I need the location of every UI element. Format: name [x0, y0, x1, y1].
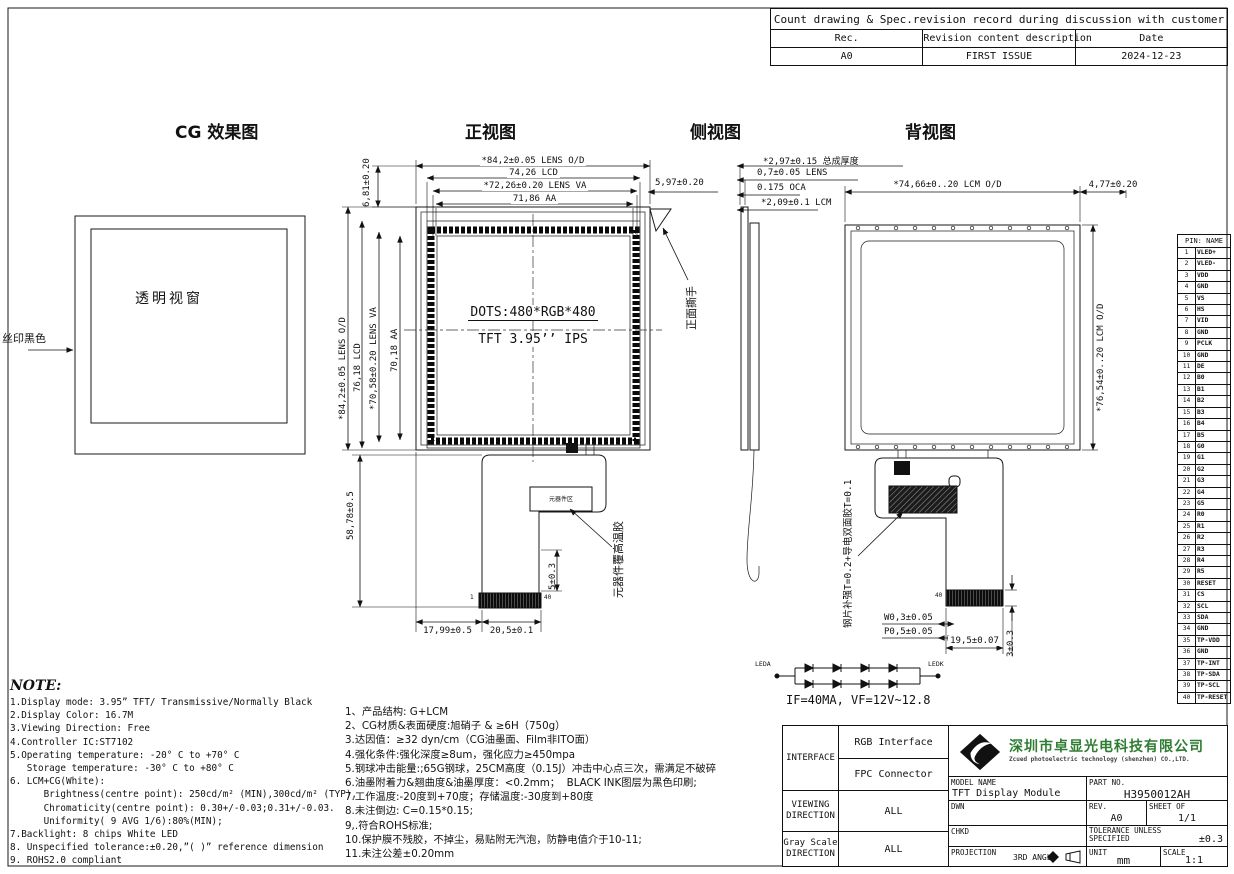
- revision-table: Count drawing & Spec.revision record dur…: [770, 8, 1228, 66]
- company-name-en: Zcued photoelectric technology (shenzhen…: [1009, 756, 1190, 763]
- note-cn-line: 6.油墨附着力&翘曲度&油墨厚度：<0.2mm； BLACK INK图层为黑色印…: [345, 776, 785, 790]
- company-name-cn: 深圳市卓显光电科技有限公司: [1009, 736, 1204, 756]
- interface-label-cell: INTERFACE: [782, 725, 839, 791]
- notes-en-heading: NOTE:: [10, 678, 61, 694]
- note-en-line: 7.Backlight: 8 chips White LED: [10, 828, 340, 841]
- chkd-cell: CHKD: [948, 825, 1087, 847]
- note-cn-line: 2、CG材质&表面硬度:旭硝子 & ≥6H（750g）: [345, 719, 785, 733]
- third-angle-projection-icon: [1046, 850, 1082, 864]
- note-en-line: 5.Operating temperature: -20° C to +70° …: [10, 749, 340, 762]
- notes-cn-lines: 1、产品结构: G+LCM2、CG材质&表面硬度:旭硝子 & ≥6H（750g）…: [345, 705, 785, 861]
- tolerance-cell: TOLERANCE UNLESS SPECIFIED ±0.3: [1086, 825, 1228, 847]
- pin-row: 5VS: [1178, 293, 1231, 304]
- led-cathode-label: LEDK: [928, 660, 944, 668]
- front-view-shape: [342, 160, 718, 632]
- viewing-direction-value-cell: ALL: [838, 790, 949, 832]
- dim-tail-width: 20,5±0.1: [482, 626, 541, 636]
- notes-en-lines: 1.Display mode: 3.95” TFT/ Transmissive/…: [10, 696, 340, 868]
- drawing-sheet: CG 效果图 正视图 侧视图 背视图 丝印黑色 透明视窗 *84,2±0.05 …: [0, 0, 1234, 874]
- view-title-back: 背视图: [905, 118, 956, 143]
- dim-lcm-od-v: *76,54±0..20 LCM O/D: [1096, 304, 1106, 412]
- pin-table-body: 1VLED+2VLED-3VDD4GND5VS6HS7VID8GND9PCLK1…: [1178, 248, 1231, 704]
- dim-oca-thickness: 0.175 OCA: [757, 183, 806, 193]
- pin-row: 8GND: [1178, 327, 1231, 338]
- component-glue-label: 元器件覆高温胶: [610, 521, 626, 598]
- pin-table: PIN: NAME 1VLED+2VLED-3VDD4GND5VS6HS7VID…: [1177, 234, 1231, 704]
- note-cn-line: 10.保护膜不残胶，不掉尘，易贴附无汽泡，防静电值介于10-11;: [345, 833, 785, 847]
- note-cn-line: 11.未注公差±0.20mm: [345, 847, 785, 861]
- note-en-line: 2.Display Color: 16.7M: [10, 709, 340, 722]
- dim-conn-width: 19,5±0.07: [946, 636, 1003, 646]
- revision-table-body: A0FIRST ISSUE2024-12-23: [771, 48, 1228, 66]
- pin-row: 38TP-SDA: [1178, 670, 1231, 681]
- pin-row: 33SDA: [1178, 613, 1231, 624]
- dim-w: W0,3±0.05: [884, 613, 933, 623]
- dim-top-right: 5,97±0.20: [655, 178, 704, 188]
- gray-scale-label-cell: Gray Scale DIRECTION: [782, 831, 839, 867]
- pin-row: 29R5: [1178, 567, 1231, 578]
- silk-print-label: 丝印黑色: [2, 330, 46, 346]
- dim-right-gap: 4,77±0.20: [1078, 180, 1148, 190]
- side-view-shape: [663, 166, 903, 581]
- pin-row: 19G1: [1178, 453, 1231, 464]
- tear-tab-label: 正面撕手: [683, 286, 699, 330]
- pin-row: 3VDD: [1178, 270, 1231, 281]
- note-en-line: 9. ROHS2.0 compliant: [10, 854, 340, 867]
- dim-lens-va-v: *70,58±0.20 LENS VA: [369, 307, 379, 410]
- front-pin1-label: 1: [470, 594, 474, 601]
- pin-row: 37TP-INT: [1178, 658, 1231, 669]
- note-en-line: 6. LCM+CG(White):: [10, 775, 340, 788]
- gray-scale-value-cell: ALL: [838, 831, 949, 867]
- dim-comp-gap: 5±0.3: [548, 563, 558, 590]
- dim-lens-thickness: 0,7±0.05 LENS: [757, 168, 827, 178]
- pin-row: 17B5: [1178, 430, 1231, 441]
- note-en-line: Brightness(centre point): 250cd/m² (MIN)…: [10, 788, 340, 801]
- note-cn-line: 7.工作温度:-20度到+70度；存储温度:-30度到+80度: [345, 790, 785, 804]
- interface-rgb-cell: RGB Interface: [838, 725, 949, 759]
- pin-row: 16B4: [1178, 419, 1231, 430]
- pin-row: 35TP-VDD: [1178, 635, 1231, 646]
- back-pin40-label: 40: [935, 592, 942, 599]
- led-anode-label: LEDA: [755, 660, 771, 668]
- note-cn-line: 4.强化条件:强化深度≥8um，强化应力≥450mpa: [345, 748, 785, 762]
- pin-row: 22G4: [1178, 487, 1231, 498]
- transparent-window-label: 透明视窗: [135, 288, 203, 308]
- model-name-cell: MODEL NAME TFT Display Module: [948, 776, 1087, 801]
- view-title-cg: CG 效果图: [175, 118, 258, 143]
- note-en-line: 1.Display mode: 3.95” TFT/ Transmissive/…: [10, 696, 340, 709]
- scale-cell: SCALE 1:1: [1160, 846, 1228, 867]
- pin-row: 4GND: [1178, 282, 1231, 293]
- pin-row: 34GND: [1178, 624, 1231, 635]
- company-logo-cell: 深圳市卓显光电科技有限公司 Zcued photoelectric techno…: [948, 725, 1228, 777]
- part-no-cell: PART NO. H3950012AH: [1086, 776, 1228, 801]
- projection-cell: PROJECTION 3RD ANGLE: [948, 846, 1087, 867]
- pin-row: 13B1: [1178, 384, 1231, 395]
- note-cn-line: 9,.符合ROHS标准;: [345, 819, 785, 833]
- pin-row: 31CS: [1178, 590, 1231, 601]
- led-spec-text: IF=40MA, VF=12V~12.8: [786, 693, 931, 707]
- back-view-shape: [845, 186, 1126, 656]
- revision-table-title: Count drawing & Spec.revision record dur…: [771, 9, 1228, 30]
- interface-fpc-cell: FPC Connector: [838, 758, 949, 791]
- note-en-line: 3.Viewing Direction: Free: [10, 722, 340, 735]
- dim-lcd-v: 76,18 LCD: [353, 343, 363, 392]
- note-cn-line: 1、产品结构: G+LCM: [345, 705, 785, 719]
- panel-type-text: TFT 3.95’’ IPS: [433, 332, 633, 347]
- pin-row: 9PCLK: [1178, 339, 1231, 350]
- dim-conn-height: 3±0.3: [1006, 630, 1016, 657]
- pin-row: 15B3: [1178, 407, 1231, 418]
- dwn-cell: DWN: [948, 800, 1087, 826]
- note-en-line: Chromaticity(centre point): 0.30+/-0.03;…: [10, 802, 340, 815]
- note-cn-line: 3.达因值：≥32 dyn/cm（CG油墨面、Film非ITO面）: [345, 733, 785, 747]
- dim-aa-v: 70,18 AA: [390, 329, 400, 372]
- rev-cell: REV. A0: [1086, 800, 1147, 826]
- revision-table-header: Rec. Revision content description Date: [771, 30, 1228, 48]
- dim-tail-height: 58,78±0.5: [346, 491, 356, 540]
- pin-row: 6HS: [1178, 305, 1231, 316]
- unit-cell: UNIT mm: [1086, 846, 1161, 867]
- pin-row: 2VLED-: [1178, 259, 1231, 270]
- pin-row: 23G5: [1178, 498, 1231, 509]
- view-title-front: 正视图: [465, 118, 516, 143]
- pin-row: 12B0: [1178, 373, 1231, 384]
- dim-lens-od-v: *84,2±0.05 LENS O/D: [338, 317, 348, 420]
- pin-row: 32SCL: [1178, 601, 1231, 612]
- dim-top-left: 6,81±0.20: [362, 158, 372, 207]
- pin-table-header: PIN: NAME: [1178, 235, 1231, 248]
- pin-row: 40TP-RESET: [1178, 692, 1231, 703]
- pin-row: 11DE: [1178, 362, 1231, 373]
- pin-row: 27R3: [1178, 544, 1231, 555]
- component-area-label: 元器件区: [530, 494, 592, 503]
- pin-row: 26R2: [1178, 533, 1231, 544]
- cg-view-shape: [28, 216, 305, 454]
- pin-row: 1VLED+: [1178, 248, 1231, 259]
- front-pin40-label: 40: [544, 594, 551, 601]
- pin-row: 14B2: [1178, 396, 1231, 407]
- dim-lcd-h: 74,26 LCD: [427, 168, 640, 178]
- dim-lcm-od-h: *74,66±0..20 LCM O/D: [845, 180, 1050, 190]
- note-en-line: Storage temperature: -30° C to +80° C: [10, 762, 340, 775]
- pin-row: 10GND: [1178, 350, 1231, 361]
- dim-lcm-thickness: *2,09±0.1 LCM: [761, 198, 831, 208]
- pin-row: 25R1: [1178, 521, 1231, 532]
- revision-row: A0FIRST ISSUE2024-12-23: [771, 48, 1228, 66]
- dim-aa-h: 71,86 AA: [436, 194, 633, 204]
- company-logo-icon: [959, 732, 1001, 772]
- dim-lens-od-h: *84,2±0.05 LENS O/D: [416, 156, 650, 166]
- stiffener-label: 钢片补强T=0.2+导电双面胶T=0.1: [840, 480, 854, 628]
- viewing-direction-label-cell: VIEWING DIRECTION: [782, 790, 839, 832]
- pin-row: 7VID: [1178, 316, 1231, 327]
- note-en-line: 4.Controller IC:ST7102: [10, 736, 340, 749]
- pin-row: 39TP-SCL: [1178, 681, 1231, 692]
- led-circuit-shape: [775, 664, 940, 688]
- sheet-cell: SHEET OF 1/1: [1146, 800, 1228, 826]
- pin-row: 20G2: [1178, 464, 1231, 475]
- pin-row: 36GND: [1178, 647, 1231, 658]
- note-en-line: Uniformity( 9 AVG 1/6):80%(MIN);: [10, 815, 340, 828]
- dim-lens-va-h: *72,26±0.20 LENS VA: [433, 181, 637, 191]
- panel-dots-text: DOTS:480*RGB*480: [433, 305, 633, 320]
- note-cn-line: 8.未注倒边: C=0.15*0.15;: [345, 804, 785, 818]
- view-title-side: 侧视图: [690, 118, 741, 143]
- dim-tail-offset: 17,99±0.5: [413, 626, 482, 636]
- pin-row: 28R4: [1178, 555, 1231, 566]
- pin-row: 18G0: [1178, 441, 1231, 452]
- note-en-line: 8. Unspecified tolerance:±0.20,”( )” ref…: [10, 841, 340, 854]
- dim-total-thickness: *2,97±0.15 总成厚度: [763, 154, 859, 167]
- dim-p: P0,5±0.05: [884, 627, 933, 637]
- pin-row: 24R0: [1178, 510, 1231, 521]
- pin-row: 30RESET: [1178, 578, 1231, 589]
- pin-row: 21G3: [1178, 476, 1231, 487]
- note-cn-line: 5.钢球冲击能量:;65G钢球，25CM高度（0.15J）冲击中心点三次，需满足…: [345, 762, 785, 776]
